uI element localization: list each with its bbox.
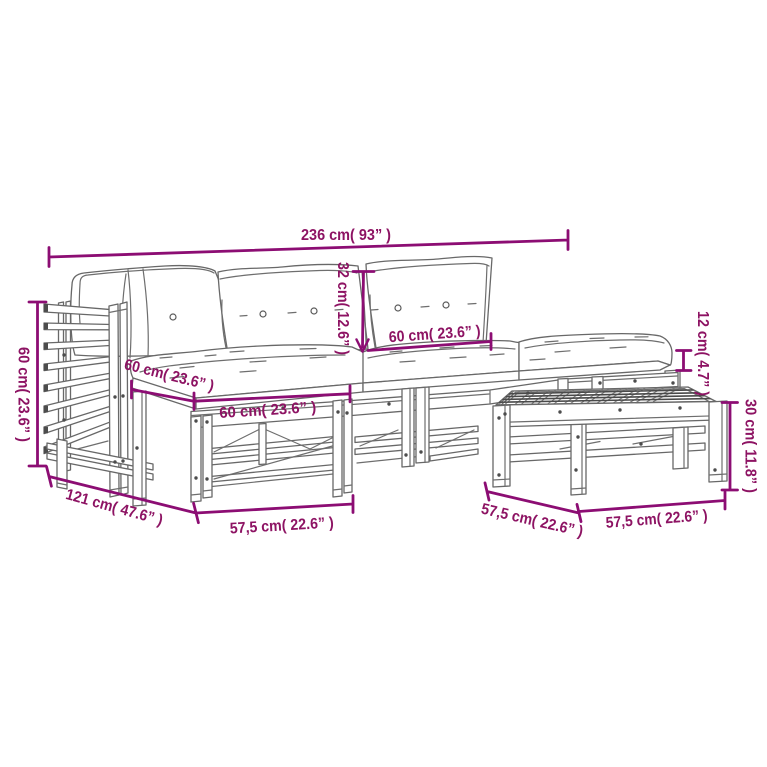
svg-text:236 cm( 93” ): 236 cm( 93” )	[301, 227, 391, 244]
svg-text:57,5 cm( 22.6” ): 57,5 cm( 22.6” )	[229, 515, 334, 538]
svg-text:57,5 cm( 22.6” ): 57,5 cm( 22.6” )	[605, 507, 708, 532]
svg-text:57,5 cm( 22.6” ): 57,5 cm( 22.6” )	[479, 501, 584, 541]
svg-text:32 cm( 12.6” ): 32 cm( 12.6” )	[334, 262, 351, 355]
svg-text:12 cm( 4.7” ): 12 cm( 4.7” )	[694, 311, 711, 396]
svg-text:60 cm( 23.6” ): 60 cm( 23.6” )	[15, 347, 32, 442]
svg-text:30 cm( 11.8” ): 30 cm( 11.8” )	[742, 399, 759, 493]
